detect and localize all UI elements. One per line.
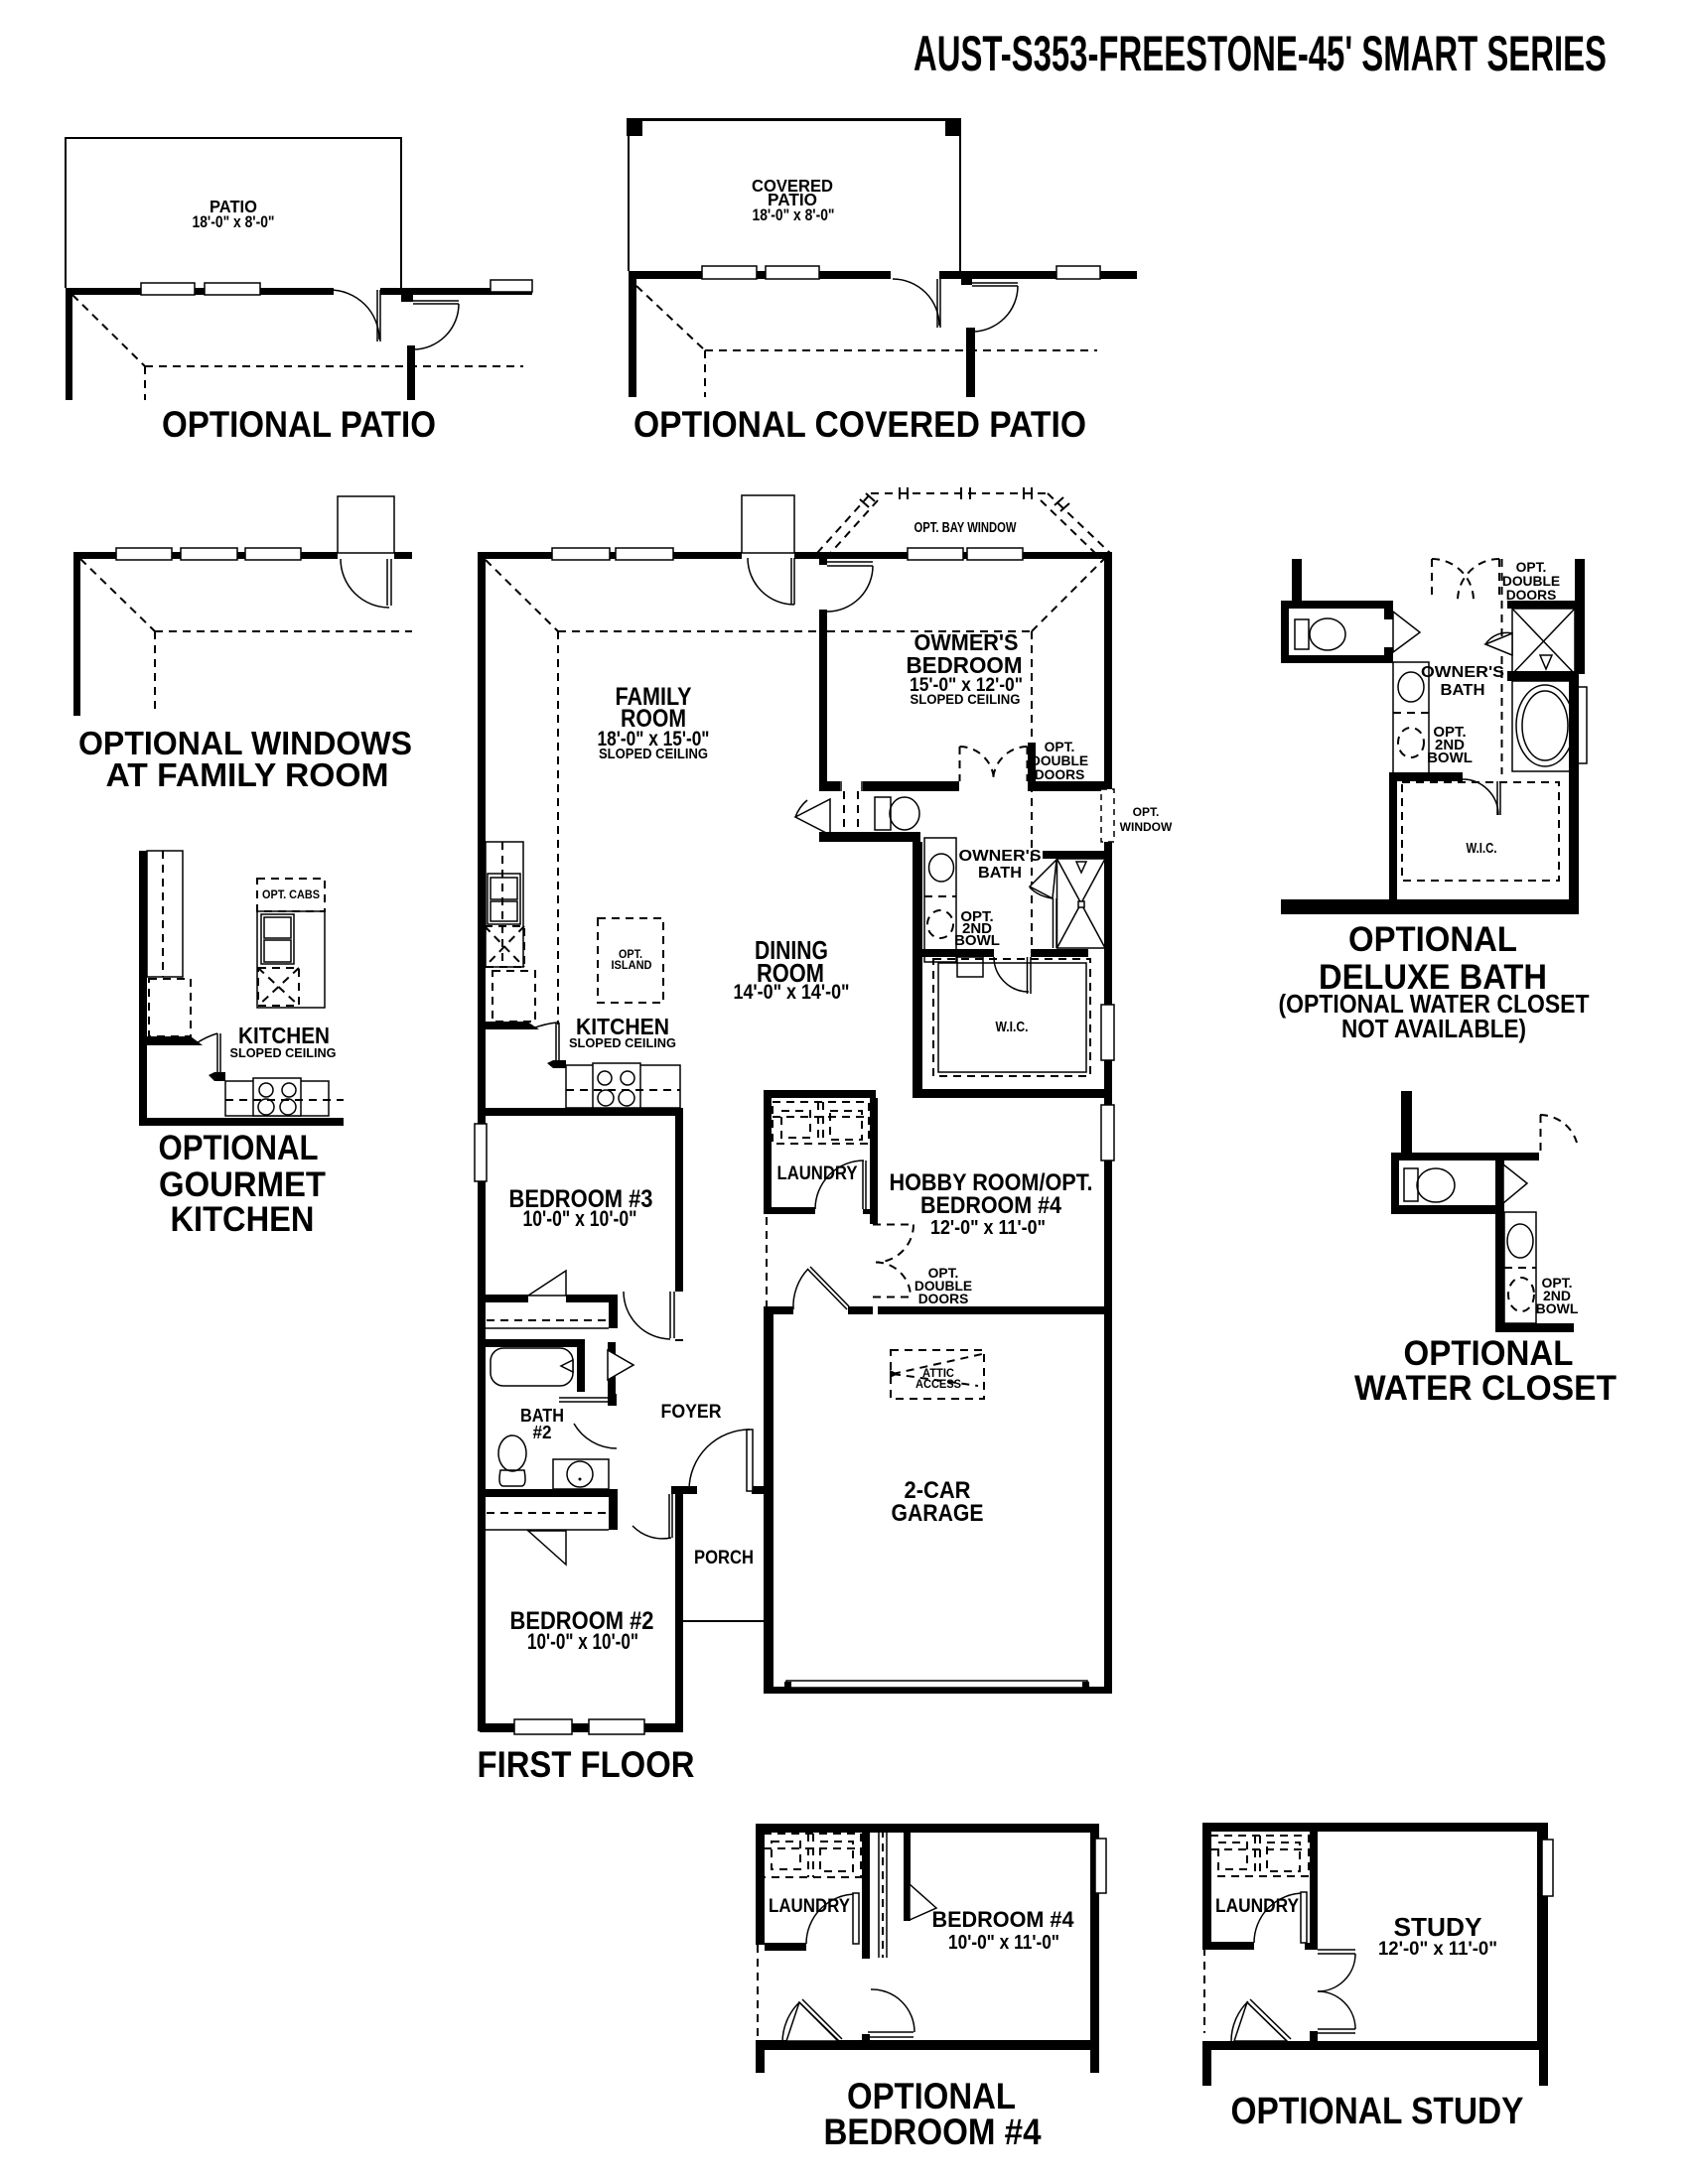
svg-text:SLOPED CEILING: SLOPED CEILING	[230, 1046, 337, 1060]
svg-text:12'-0" x 11'-0": 12'-0" x 11'-0"	[930, 1217, 1046, 1239]
svg-text:OWNER'S: OWNER'S	[959, 848, 1042, 865]
svg-text:WATER CLOSET: WATER CLOSET	[1354, 1369, 1617, 1408]
svg-text:OPT.: OPT.	[1516, 560, 1547, 575]
svg-text:BATH: BATH	[1441, 682, 1485, 699]
svg-text:LAUNDRY: LAUNDRY	[1215, 1896, 1299, 1917]
svg-text:10'-0" x 11'-0": 10'-0" x 11'-0"	[948, 1932, 1059, 1954]
svg-text:14'-0" x 14'-0": 14'-0" x 14'-0"	[734, 981, 850, 1004]
svg-text:OPT. BAY WINDOW: OPT. BAY WINDOW	[914, 520, 1017, 536]
svg-text:OPTIONAL COVERED PATIO: OPTIONAL COVERED PATIO	[633, 404, 1086, 445]
svg-text:BEDROOM #4: BEDROOM #4	[824, 2112, 1042, 2152]
svg-text:OWNER'S: OWNER'S	[1421, 664, 1504, 681]
svg-text:OPTIONAL: OPTIONAL	[847, 2076, 1016, 2116]
svg-text:BOWL: BOWL	[1536, 1300, 1579, 1316]
svg-text:AT FAMILY ROOM: AT FAMILY ROOM	[106, 756, 389, 793]
svg-text:OPTIONAL: OPTIONAL	[159, 1129, 319, 1167]
svg-text:LAUNDRY: LAUNDRY	[769, 1896, 850, 1917]
svg-text:OPTIONAL PATIO: OPTIONAL PATIO	[162, 404, 436, 445]
svg-text:FIRST FLOOR: FIRST FLOOR	[478, 1744, 695, 1785]
svg-text:OPTIONAL STUDY: OPTIONAL STUDY	[1231, 2091, 1524, 2132]
svg-text:LAUNDRY: LAUNDRY	[777, 1163, 858, 1184]
svg-text:OPT. CABS: OPT. CABS	[262, 887, 320, 901]
svg-text:GOURMET: GOURMET	[159, 1165, 326, 1204]
svg-text:DOUBLE: DOUBLE	[1031, 753, 1088, 768]
svg-text:10'-0" x 10'-0": 10'-0" x 10'-0"	[523, 1206, 637, 1231]
svg-text:OPT.: OPT.	[1045, 740, 1075, 754]
svg-text:WINDOW: WINDOW	[1120, 820, 1173, 834]
svg-text:DOUBLE: DOUBLE	[1502, 574, 1560, 589]
svg-text:ACCESS: ACCESS	[915, 1379, 961, 1391]
svg-text:DOORS: DOORS	[1035, 767, 1085, 782]
svg-text:18'-0" x 8'-0": 18'-0" x 8'-0"	[753, 205, 835, 224]
svg-text:PORCH: PORCH	[694, 1548, 754, 1569]
svg-text:DOORS: DOORS	[918, 1292, 969, 1306]
svg-text:12'-0" x 11'-0": 12'-0" x 11'-0"	[1378, 1938, 1497, 1960]
svg-text:NOT AVAILABLE): NOT AVAILABLE)	[1341, 1014, 1526, 1043]
svg-text:OPTIONAL: OPTIONAL	[1348, 920, 1517, 959]
svg-text:#2: #2	[533, 1422, 552, 1442]
svg-text:KITCHEN: KITCHEN	[171, 1200, 315, 1239]
svg-text:ISLAND: ISLAND	[612, 958, 652, 972]
svg-text:SLOPED CEILING: SLOPED CEILING	[569, 1035, 676, 1050]
svg-text:18'-0" x 8'-0": 18'-0" x 8'-0"	[193, 212, 275, 231]
svg-text:W.I.C.: W.I.C.	[1467, 841, 1497, 857]
svg-text:OPT.: OPT.	[1133, 805, 1160, 819]
svg-text:SLOPED CEILING: SLOPED CEILING	[599, 747, 708, 762]
svg-text:BOWL: BOWL	[1427, 750, 1473, 766]
svg-text:GARAGE: GARAGE	[892, 1500, 984, 1527]
svg-text:FOYER: FOYER	[661, 1402, 722, 1423]
svg-text:BEDROOM #4: BEDROOM #4	[932, 1907, 1075, 1932]
svg-text:BEDROOM #4: BEDROOM #4	[920, 1192, 1062, 1219]
svg-text:10'-0" x 10'-0": 10'-0" x 10'-0"	[527, 1629, 638, 1654]
svg-text:BATH: BATH	[978, 865, 1022, 882]
svg-text:AUST-S353-FREESTONE-45' SMART: AUST-S353-FREESTONE-45' SMART SERIES	[914, 26, 1607, 81]
svg-text:KITCHEN: KITCHEN	[238, 1023, 330, 1048]
svg-text:DOORS: DOORS	[1506, 588, 1557, 603]
svg-text:SLOPED CEILING: SLOPED CEILING	[911, 691, 1021, 707]
svg-text:W.I.C.: W.I.C.	[996, 1020, 1029, 1035]
svg-text:OPTIONAL: OPTIONAL	[1404, 1334, 1574, 1373]
svg-text:BOWL: BOWL	[954, 932, 1000, 949]
